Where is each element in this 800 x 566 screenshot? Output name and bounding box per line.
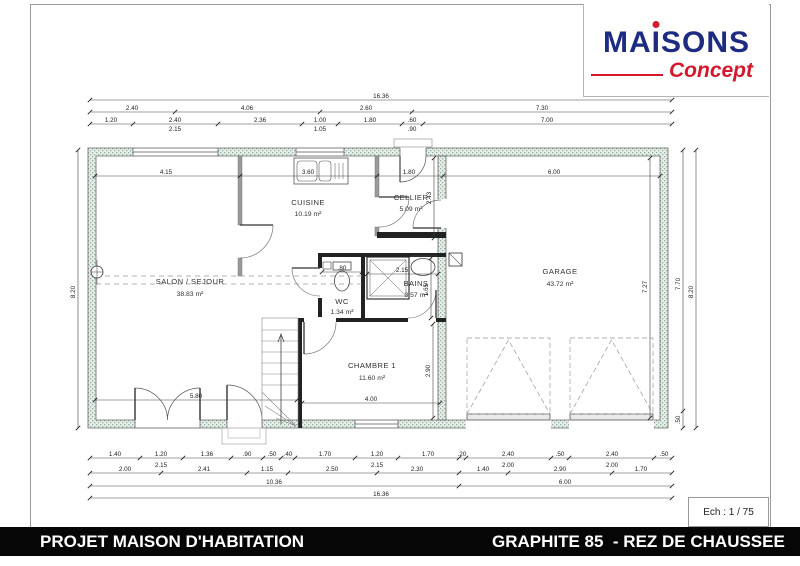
dimension-label: 2.15: [169, 126, 182, 133]
scale-box: Ech : 1 / 75: [688, 497, 769, 527]
dimension-label: 8.20: [688, 285, 695, 298]
dimension-label: .90: [408, 126, 417, 133]
dimension-label: 2.41: [198, 466, 211, 473]
logo-red-line: [591, 74, 663, 76]
dimension-label: 2.15: [155, 462, 168, 469]
room-area-salon: 38.83 m²: [177, 291, 205, 298]
dimension-label: 4.00: [365, 396, 378, 403]
dimension-label: 6.00: [559, 479, 572, 486]
dimension-label: 1.80: [403, 169, 416, 176]
entrance-door: [222, 385, 266, 444]
window-kitchen: [296, 148, 344, 157]
dimension-label: 16.36: [373, 93, 389, 100]
dimension-label: 1.40: [477, 466, 490, 473]
dimension-label: .50: [675, 415, 682, 424]
logo: MAISONS Concept: [583, 4, 769, 97]
dimension-label: 2.00: [119, 466, 132, 473]
dimension-label: 2.36: [254, 117, 267, 124]
dimension-label: .50: [556, 451, 565, 458]
door-wc: [292, 268, 320, 296]
dimension-label: 10.36: [266, 479, 282, 486]
dimension-label: 2.40: [606, 451, 619, 458]
room-area-cellier: 5.09 m²: [399, 206, 423, 213]
garage-wall: [438, 156, 446, 420]
room-area-wc: 1.34 m²: [330, 309, 354, 316]
title-bar: PROJET MAISON D'HABITATION GRAPHITE 85 -…: [0, 527, 800, 556]
shower: [367, 257, 409, 299]
dimension-label: 1.70: [635, 466, 648, 473]
dimension-label: 1.05: [314, 126, 327, 133]
dimension-label: 2.00: [606, 462, 619, 469]
logo-i-reddot: I: [652, 28, 661, 58]
logo-part1: MA: [603, 26, 652, 59]
dimension-label: 2.40: [169, 117, 182, 124]
washbasin: [410, 256, 437, 276]
door-chambre: [304, 322, 336, 354]
dimension-label: 7.27: [642, 280, 649, 293]
dimension-label: .20: [458, 451, 467, 458]
dimension-label: 2.40: [502, 451, 515, 458]
room-label-cuisine: CUISINE: [291, 198, 325, 207]
dimension-label: 1.36: [201, 451, 214, 458]
room-area-chambre: 11.60 m²: [359, 375, 386, 382]
dimension-label: 2.15: [371, 462, 384, 469]
dimension-label: 2.60: [360, 105, 373, 112]
dimension-label: 1.20: [155, 451, 168, 458]
garage-door-1: [466, 338, 551, 429]
dimension-label: 3.60: [302, 169, 315, 176]
dimension-label: .90: [243, 451, 252, 458]
dimension-label: 8.20: [70, 285, 77, 298]
room-label-salon: SALON / SEJOUR: [156, 277, 225, 286]
dimension-label: 2.90: [554, 466, 567, 473]
dimension-label: 7.70: [675, 277, 682, 290]
stairs: [262, 318, 298, 428]
dimension-label: 2.00: [502, 462, 515, 469]
logo-wordmark: MAISONS: [594, 18, 759, 58]
garage-door-2: [569, 338, 654, 429]
dimension-label: 1.15: [261, 466, 274, 473]
room-label-wc: WC: [335, 297, 349, 306]
dimension-label: .40: [284, 451, 293, 458]
dimension-label: 2.90: [425, 364, 432, 377]
dimension-label: .50: [268, 451, 277, 458]
dimension-label: 16.36: [373, 491, 389, 498]
project-title: PROJET MAISON D'HABITATION: [40, 532, 304, 552]
room-label-chambre: CHAMBRE 1: [348, 361, 396, 370]
dimension-label: 2.30: [411, 466, 424, 473]
room-area-bains: 3.57 m²: [404, 292, 428, 299]
dimension-label: 5.80: [190, 393, 203, 400]
scale-label: Ech : 1 / 75: [703, 507, 754, 518]
dimension-label: 2.15: [396, 267, 409, 274]
dimension-label: 2.40: [126, 105, 139, 112]
beam-dashed-lines: [96, 276, 364, 284]
logo-part3: SONS: [661, 26, 750, 59]
dimension-label: 1.80: [364, 117, 377, 124]
door-cuisine: [240, 225, 273, 258]
dimension-label: 4.15: [160, 169, 173, 176]
logo-concept: Concept: [669, 59, 753, 83]
water-heater: [449, 253, 462, 266]
window-salon-top: [133, 148, 218, 157]
room-area-cuisine: 10.19 m²: [295, 211, 323, 218]
dimension-label: 4.06: [241, 105, 254, 112]
dimension-label: .80: [338, 265, 347, 272]
dimension-label: 1.20: [105, 117, 118, 124]
dimension-label: 1.00: [314, 117, 327, 124]
room-area-garage: 43.72 m²: [547, 281, 575, 288]
dimension-label: 1.70: [319, 451, 332, 458]
dimension-label: 7.00: [541, 117, 554, 124]
sheet-title: GRAPHITE 85 - REZ DE CHAUSSEE: [492, 532, 785, 552]
dimension-label: 7.30: [536, 105, 549, 112]
dimension-label: 2.50: [326, 466, 339, 473]
dimension-label: .50: [660, 451, 669, 458]
window-chambre: [355, 420, 398, 429]
room-label-cellier: CELLIER: [394, 193, 429, 202]
dimension-label: 1.20: [371, 451, 384, 458]
room-label-bains: BAINS: [404, 279, 429, 288]
room-label-garage: GARAGE: [543, 267, 578, 276]
dimension-label: 1.70: [422, 451, 435, 458]
dimension-label: 6.00: [548, 169, 561, 176]
dimension-label: .60: [408, 117, 417, 124]
dimension-label: 1.40: [109, 451, 122, 458]
